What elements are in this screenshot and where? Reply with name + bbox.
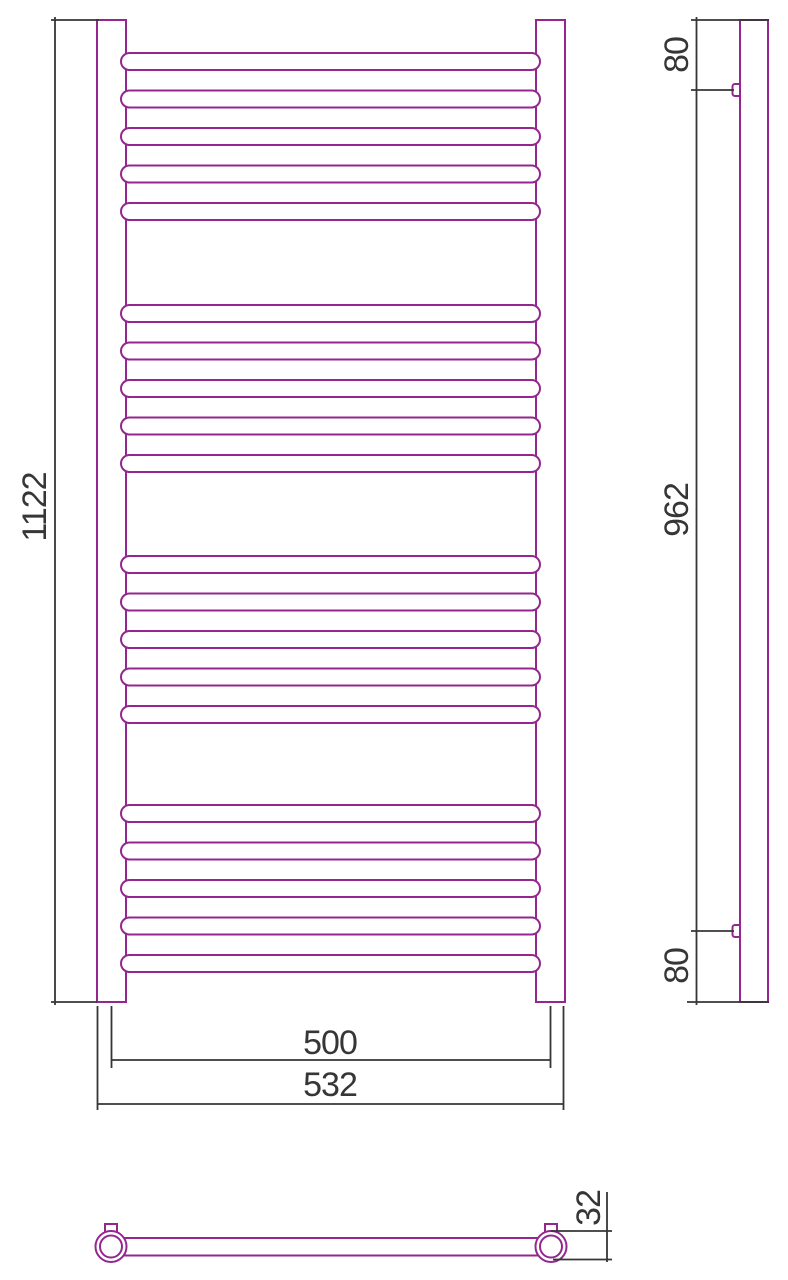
crossbar [121,556,540,573]
crossbar [121,305,540,322]
dimension-label: 500 [303,1024,357,1062]
crossbar [121,455,540,472]
dimension-label: 32 [570,1190,608,1226]
front-view [97,20,565,1002]
dimension-label: 962 [658,483,696,537]
dimension-center-width: 500 [112,1006,551,1068]
technical-drawing-canvas: 1122 500 532 80 962 80 [0,0,788,1280]
crossbar [121,631,540,648]
dimension-label: 80 [658,37,696,73]
crossbar [121,706,540,723]
crossbar [121,128,540,145]
crossbar [121,418,540,435]
side-rail [740,20,768,1002]
crossbar [121,880,540,897]
right-rail [536,20,565,1002]
crossbar [121,380,540,397]
crossbar [121,669,540,686]
dimension-bracket-span: 962 [658,90,697,931]
dimension-label: 532 [303,1066,357,1104]
dimension-label: 1122 [16,472,54,541]
crossbar [121,343,540,360]
crossbar [121,203,540,220]
towel-rail-drawing: 1122 500 532 80 962 80 [0,0,788,1280]
crossbar [121,594,540,611]
crossbar [121,918,540,935]
crossbar [121,805,540,822]
crossbar [121,53,540,70]
side-view [733,20,769,1002]
crossbar [121,955,540,972]
dimension-height: 1122 [16,17,99,1005]
dimension-label: 80 [658,948,696,984]
crossbar [121,843,540,860]
crossbar [121,166,540,183]
crossbar [121,91,540,108]
bottom-view [96,1224,567,1262]
